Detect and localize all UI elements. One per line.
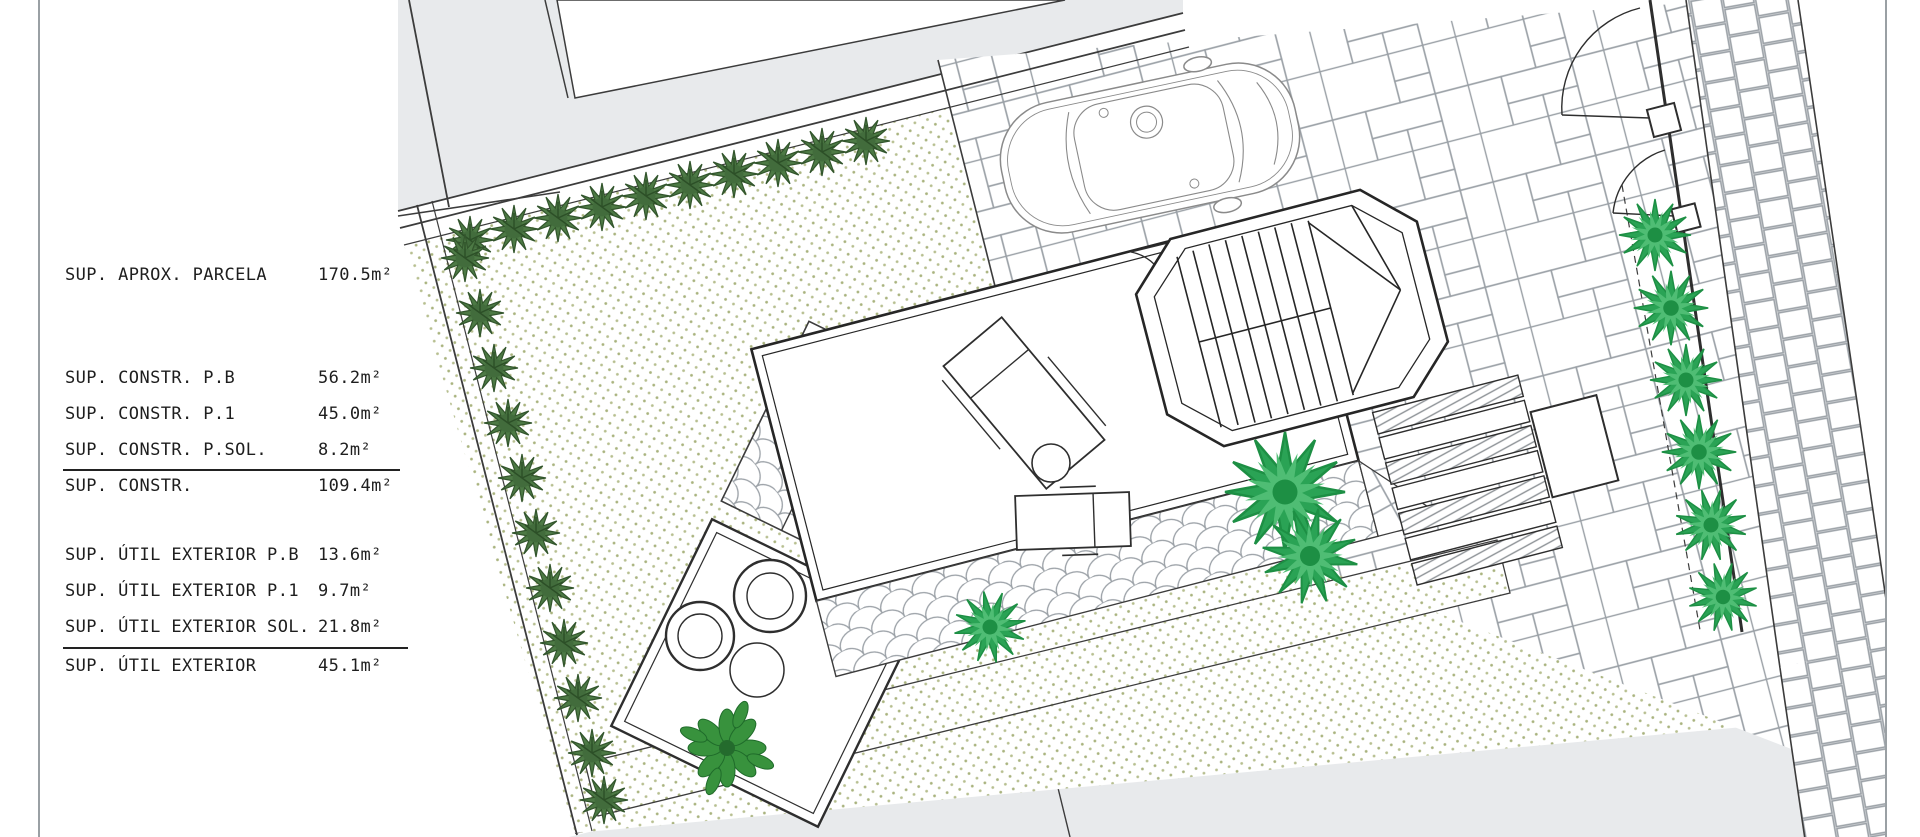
legend-row-constr-p1: SUP. CONSTR. P.1 45.0m²: [65, 404, 425, 428]
legend-label: SUP. CONSTR. P.B: [65, 368, 235, 388]
legend-label: SUP. ÚTIL EXTERIOR: [65, 656, 256, 676]
legend-label: SUP. ÚTIL EXTERIOR P.B: [65, 545, 299, 565]
legend-value: 8.2m²: [318, 440, 371, 460]
legend-row-util-p1: SUP. ÚTIL EXTERIOR P.1 9.7m²: [65, 581, 425, 605]
sheet-margin-right: [1886, 0, 1920, 837]
legend-value: 45.1m²: [318, 656, 382, 676]
legend-label: SUP. CONSTR. P.SOL.: [65, 440, 267, 460]
sun-lounger: [1015, 485, 1131, 557]
round-table: [1032, 444, 1070, 482]
legend-value: 56.2m²: [318, 368, 382, 388]
legend-label: SUP. ÚTIL EXTERIOR SOL.: [65, 617, 310, 637]
gate-post: [1647, 103, 1681, 137]
legend-value: 45.0m²: [318, 404, 382, 424]
legend-row-constr-pb: SUP. CONSTR. P.B 56.2m²: [65, 368, 425, 392]
patio-side-table: [730, 643, 784, 697]
legend-label: SUP. CONSTR.: [65, 476, 193, 496]
legend-value: 170.5m²: [318, 265, 392, 285]
legend-label: SUP. ÚTIL EXTERIOR P.1: [65, 581, 299, 601]
legend-value: 9.7m²: [318, 581, 371, 601]
legend-value: 109.4m²: [318, 476, 392, 496]
patio-chair: [734, 560, 806, 632]
legend-row-util-pb: SUP. ÚTIL EXTERIOR P.B 13.6m²: [65, 545, 425, 569]
legend-label: SUP. CONSTR. P.1: [65, 404, 235, 424]
legend-row-util-total: SUP. ÚTIL EXTERIOR 45.1m²: [65, 656, 425, 680]
legend-row-constr-total: SUP. CONSTR. 109.4m²: [65, 476, 425, 500]
legend-row-constr-psol: SUP. CONSTR. P.SOL. 8.2m²: [65, 440, 425, 464]
legend-subtotal-rule: [63, 647, 408, 649]
legend-row-util-sol: SUP. ÚTIL EXTERIOR SOL. 21.8m²: [65, 617, 425, 641]
legend-value: 21.8m²: [318, 617, 382, 637]
legend-value: 13.6m²: [318, 545, 382, 565]
site-plan-sheet: SUP. APROX. PARCELA 170.5m² SUP. CONSTR.…: [0, 0, 1920, 837]
patio-chair: [666, 602, 734, 670]
legend-row-parcela: SUP. APROX. PARCELA 170.5m²: [65, 265, 425, 289]
legend-subtotal-rule: [63, 469, 400, 471]
legend-label: SUP. APROX. PARCELA: [65, 265, 267, 285]
